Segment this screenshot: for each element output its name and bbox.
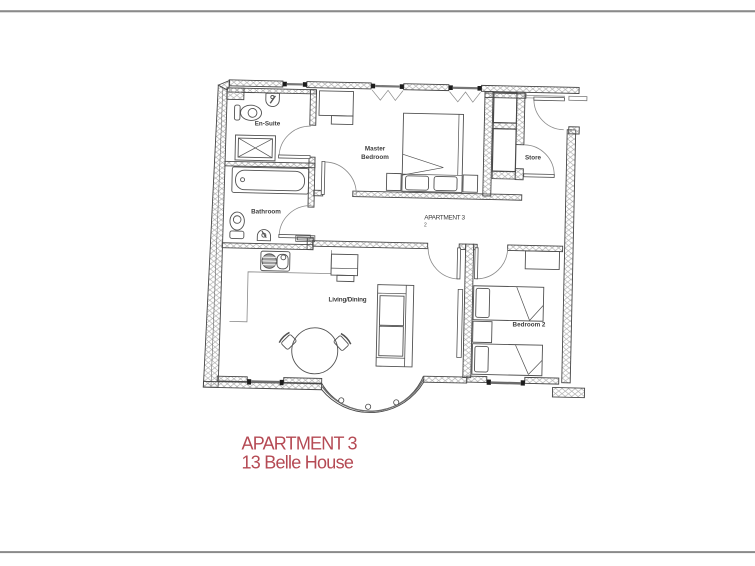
svg-text:2: 2 bbox=[424, 223, 427, 229]
svg-text:Bathroom: Bathroom bbox=[251, 209, 281, 216]
svg-text:Store: Store bbox=[525, 155, 542, 162]
svg-text:APARTMENT 3: APARTMENT 3 bbox=[424, 215, 465, 222]
svg-text:13 Belle House: 13 Belle House bbox=[242, 453, 354, 473]
svg-text:Living/Dining: Living/Dining bbox=[329, 297, 367, 304]
svg-text:Master: Master bbox=[365, 146, 386, 153]
svg-text:En-Suite: En-Suite bbox=[255, 121, 281, 128]
svg-text:APARTMENT 3: APARTMENT 3 bbox=[242, 434, 358, 454]
svg-text:Bedroom: Bedroom bbox=[361, 154, 389, 161]
svg-text:Bedroom 2: Bedroom 2 bbox=[513, 322, 546, 329]
